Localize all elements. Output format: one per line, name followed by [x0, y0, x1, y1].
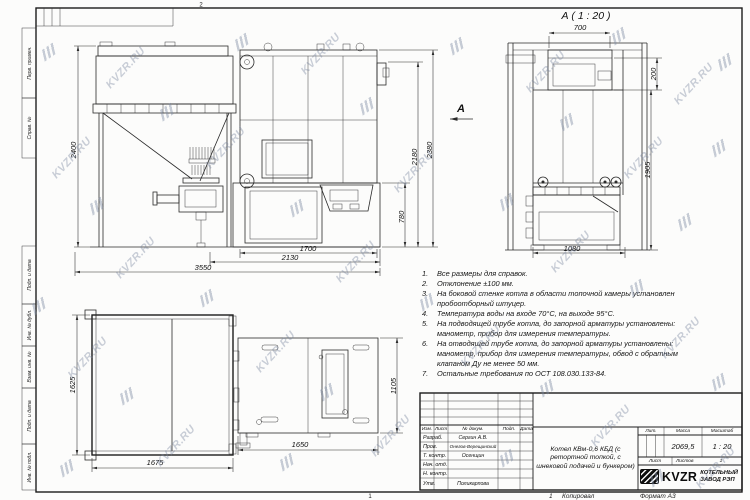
- zone-number-bottom: 1: [368, 494, 372, 500]
- note-text: На боковой стенке котла в области топочн…: [437, 289, 710, 309]
- frame-label-podp1: Подп. и дата: [27, 259, 33, 291]
- tb-scale-label: Масштаб: [702, 427, 742, 435]
- company-name: КОТЕЛЬНЫЙ ЗАВОД РЭП: [700, 470, 738, 483]
- note-item-2: 2.Отклонение ±100 мм.: [422, 279, 710, 289]
- dimensions: 2400 780 2180 2380 1700 2130 3550 700: [68, 10, 662, 472]
- dim-front-w2: 2130: [281, 253, 300, 262]
- company-logo-block: KVZR КОТЕЛЬНЫЙ ЗАВОД РЭП: [640, 464, 740, 489]
- tb-col-podp: Подп.: [498, 425, 520, 433]
- tb-role-prov: Пров.: [421, 442, 448, 451]
- footer-format-label: Формат А3: [640, 493, 676, 500]
- tb-lit-label: Лит.: [638, 427, 664, 435]
- dim-front-total-h: 2380: [425, 141, 434, 160]
- view-arrow-label: А: [456, 103, 465, 115]
- tb-scale-value: 1 : 20: [702, 436, 742, 456]
- note-text: Температура воды на входе 70°С, на выход…: [437, 309, 710, 319]
- note-text: Все размеры для справок.: [437, 269, 710, 279]
- dim-side-height: 2400: [69, 141, 78, 160]
- tb-col-izm: Изм.: [420, 425, 434, 433]
- dim-rear-h: 1905: [643, 161, 652, 179]
- note-number: 1.: [422, 269, 437, 279]
- footer-number: 1: [549, 493, 553, 500]
- footer-strip: 1 Копировал Формат А3: [549, 493, 676, 500]
- tb-role-tkontr: Т. контр.: [421, 451, 448, 460]
- note-text: Отклонение ±100 мм.: [437, 279, 710, 289]
- note-number: 6.: [422, 339, 437, 369]
- tb-name-nachotd: [448, 460, 498, 469]
- dim-front-base-h: 780: [397, 210, 406, 223]
- frame-label-vzam: Взам. инв. №: [27, 351, 33, 383]
- side-view-bunker: [90, 42, 380, 247]
- tb-role-nkontr: Н. контр.: [421, 469, 448, 478]
- note-number: 4.: [422, 309, 437, 319]
- detail-view-label: А ( 1 : 20 ): [560, 10, 610, 22]
- frame-label-inv-podl: Инв. № подл.: [27, 451, 33, 482]
- drawing-sheet: Перв. примен. Справ. № Подп. и дата Инв.…: [0, 0, 750, 500]
- tb-role-nachotd: Нач. отд.: [421, 460, 448, 469]
- dim-front-body-h: 2180: [410, 148, 419, 167]
- frame-label-sprav: Справ. №: [27, 116, 33, 139]
- note-item-1: 1.Все размеры для справок.: [422, 269, 710, 279]
- note-text: На отводящей трубе котла, до запорной ар…: [437, 339, 710, 369]
- note-item-6: 6.На отводящей трубе котла, до запорной …: [422, 339, 710, 369]
- note-item-4: 4.Температура воды на входе 70°С, на вых…: [422, 309, 710, 319]
- drawing-svg: Перв. примен. Справ. № Подп. и дата Инв.…: [0, 0, 750, 500]
- tb-col-list: Лист: [434, 425, 448, 433]
- sheet-frame: Перв. примен. Справ. № Подп. и дата Инв.…: [22, 3, 742, 500]
- company-line2: ЗАВОД РЭП: [700, 477, 738, 484]
- plan-view: [85, 310, 378, 460]
- notes-list: 1.Все размеры для справок. 2.Отклонение …: [422, 269, 710, 379]
- tb-name-utv: Поликарпова: [448, 478, 498, 490]
- dim-front-w1: 1700: [300, 244, 318, 253]
- note-text: Остальные требования по ОСТ 108.030.133-…: [437, 369, 710, 379]
- tb-role-razrab: Разраб.: [421, 433, 448, 442]
- frame-label-perv: Перв. примен.: [27, 46, 33, 79]
- dim-rear-top-h: 200: [649, 67, 658, 81]
- note-text: На подводящей трубе котла, до запорной а…: [437, 319, 710, 339]
- footer-copied-label: Копировал: [562, 493, 595, 500]
- frame-label-inv-dubl: Инв. № дубл.: [27, 310, 33, 341]
- note-number: 5.: [422, 319, 437, 339]
- note-item-3: 3.На боковой стенке котла в области топо…: [422, 289, 710, 309]
- note-item-7: 7.Остальные требования по ОСТ 108.030.13…: [422, 369, 710, 379]
- tb-mass-value: 2069,5: [664, 436, 702, 456]
- tb-name-prov: Онегов-Верещинский: [448, 442, 498, 451]
- kvzr-logo-icon: [640, 469, 659, 484]
- tb-col-dokum: № докум.: [448, 425, 498, 433]
- front-view-boiler: [233, 43, 389, 247]
- dim-plan-bunker-d: 1625: [68, 376, 77, 394]
- note-number: 3.: [422, 289, 437, 309]
- frame-label-podp2: Подп. и дата: [27, 400, 33, 432]
- dim-rear-w: 1080: [564, 244, 582, 253]
- note-item-5: 5.На подводящей трубе котла, до запорной…: [422, 319, 710, 339]
- dim-plan-boiler-w: 1650: [292, 440, 310, 449]
- tb-role-utv: Утв.: [421, 478, 448, 490]
- company-line1: КОТЕЛЬНЫЙ: [700, 470, 738, 477]
- tb-name-nkontr: [448, 469, 498, 478]
- tb-mass-label: Масса: [664, 427, 702, 435]
- dim-plan-boiler-d: 1105: [389, 377, 398, 394]
- kvzr-logo-text: KVZR: [662, 470, 697, 484]
- tb-document-title: Котел КВм-0,6 КБД (с ретортной топкой, с…: [534, 428, 637, 489]
- note-number: 2.: [422, 279, 437, 289]
- dim-plan-bunker-w: 1675: [147, 458, 165, 467]
- tb-col-data: Дата: [520, 425, 533, 433]
- dim-front-total-w: 3550: [195, 263, 213, 272]
- rear-view-a: [505, 43, 650, 250]
- tb-name-razrab: Сергин А.В.: [448, 433, 498, 442]
- tb-name-tkontr: Осенщин: [448, 451, 498, 460]
- dim-rear-top-w: 700: [574, 23, 587, 32]
- note-number: 7.: [422, 369, 437, 379]
